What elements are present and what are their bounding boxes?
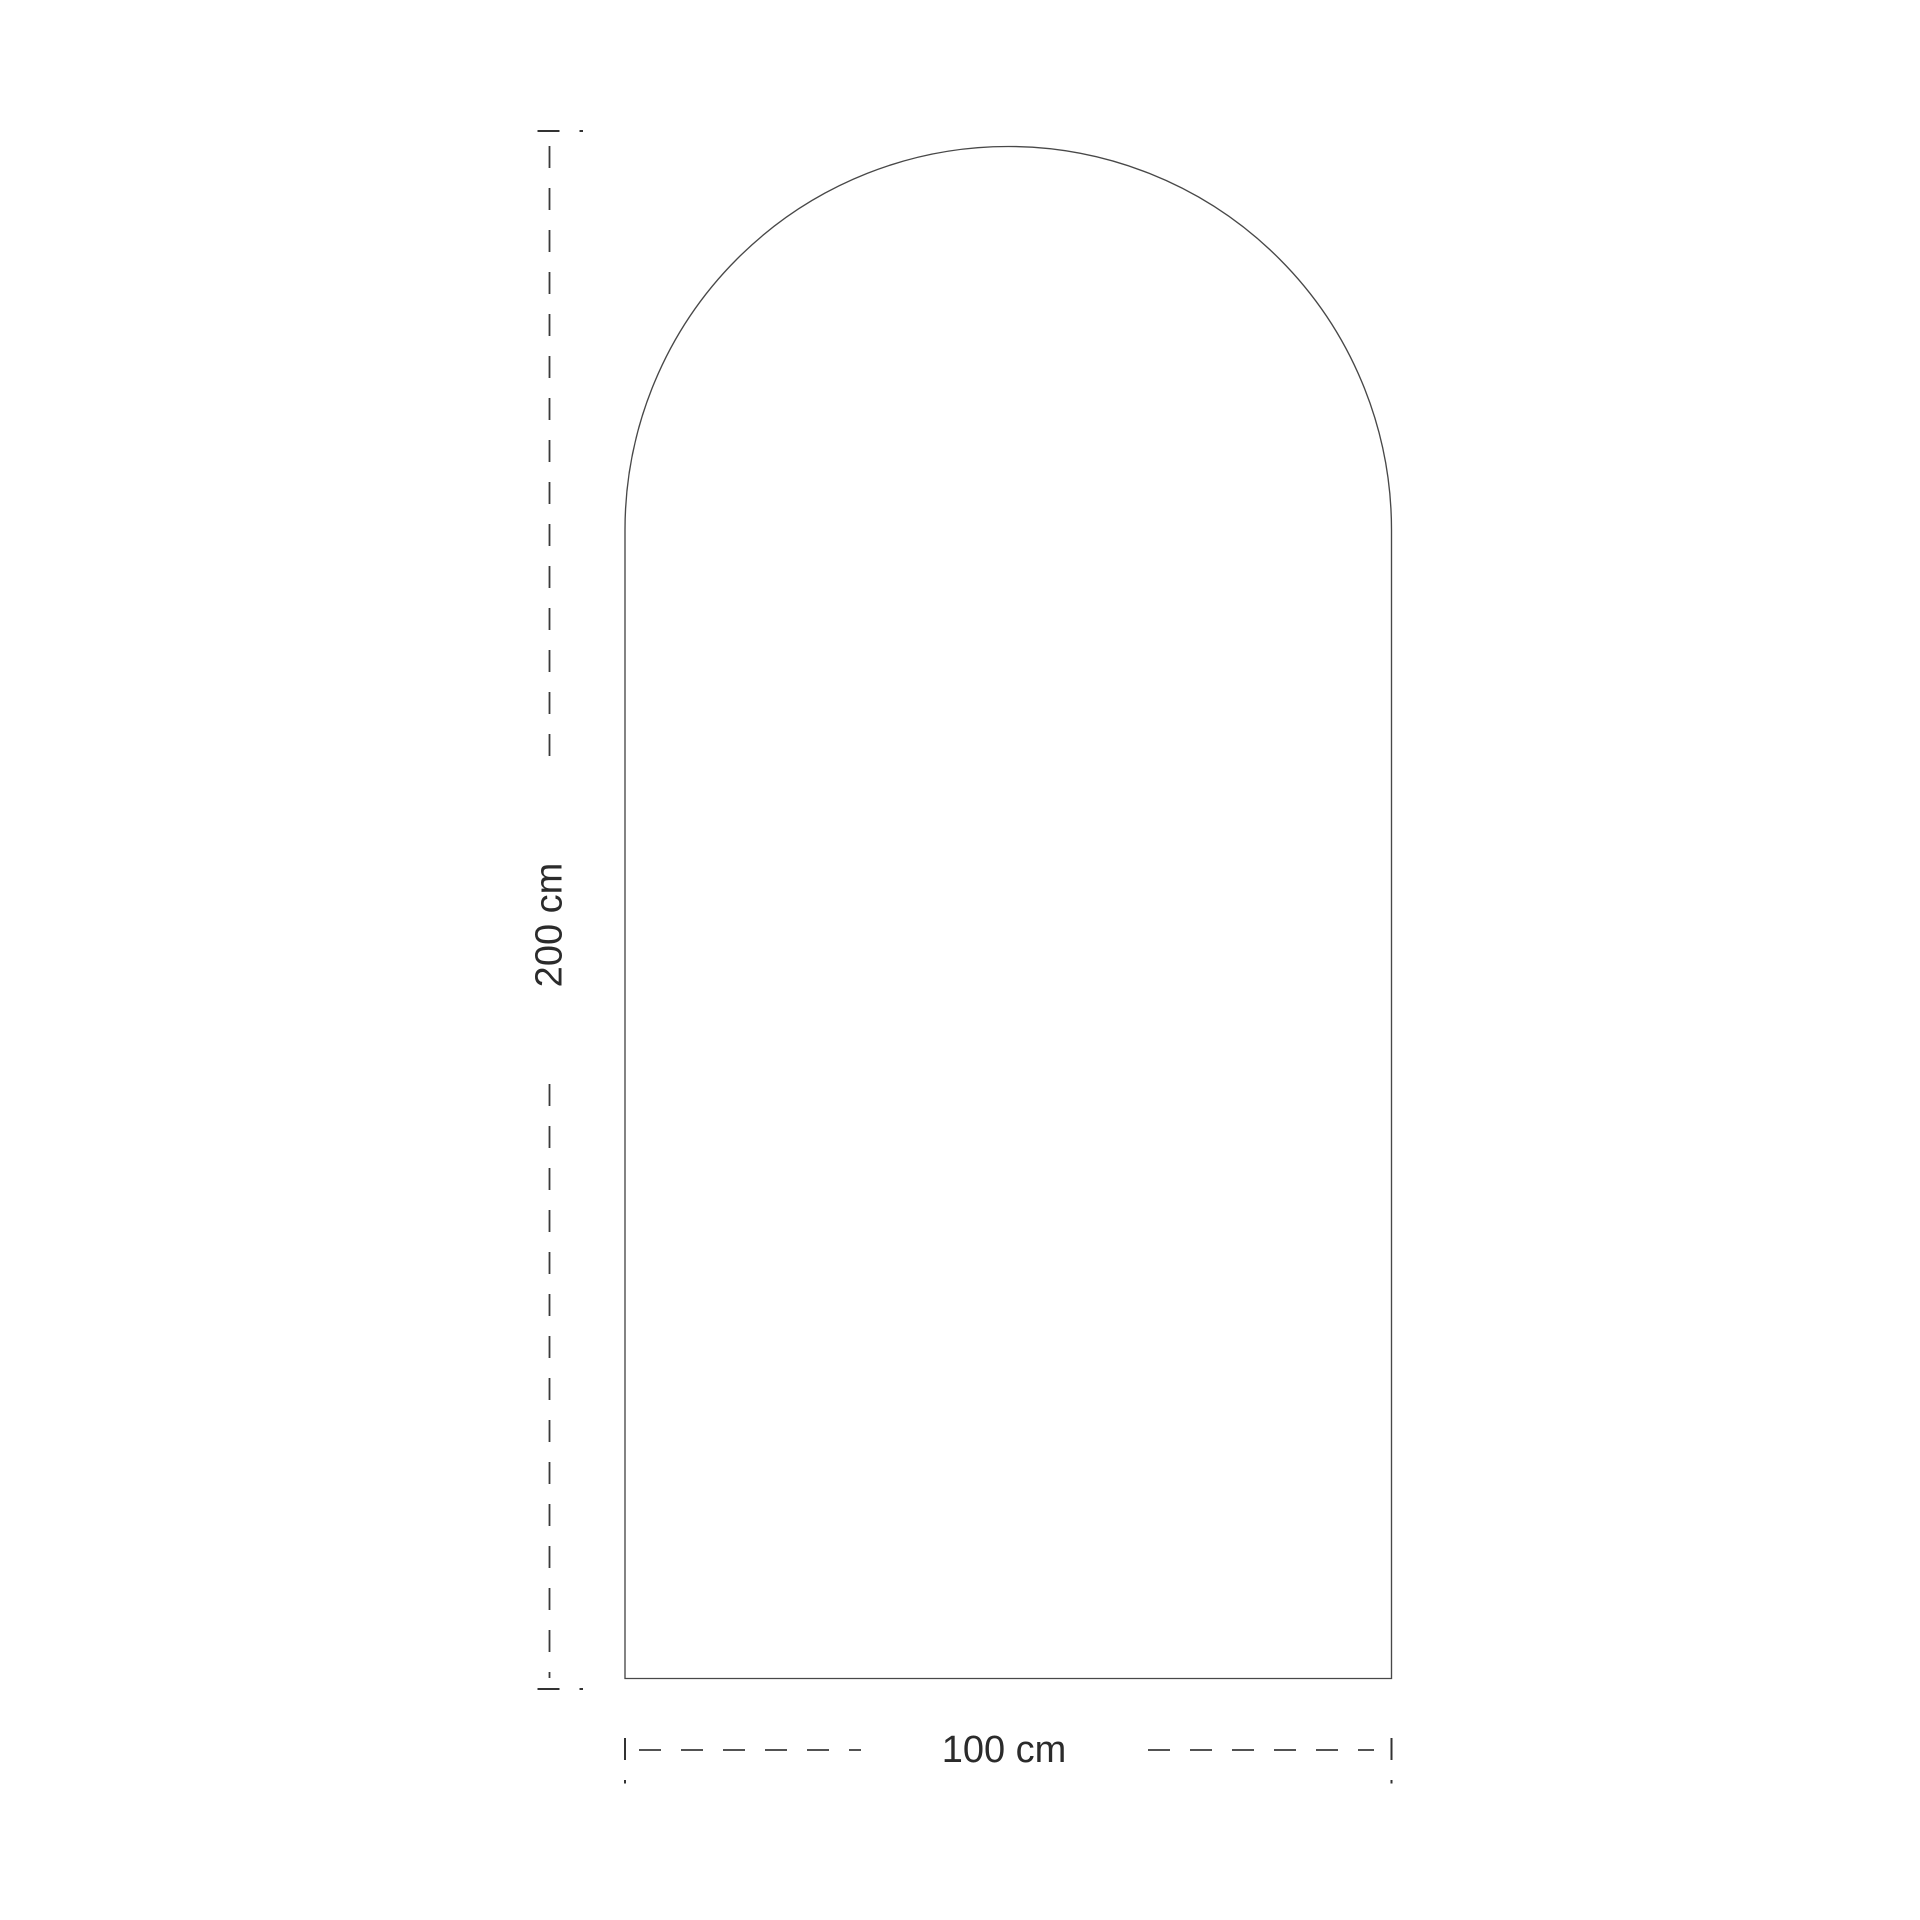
svg-text:200 cm: 200 cm — [529, 863, 571, 988]
svg-text:100 cm: 100 cm — [942, 1729, 1067, 1771]
